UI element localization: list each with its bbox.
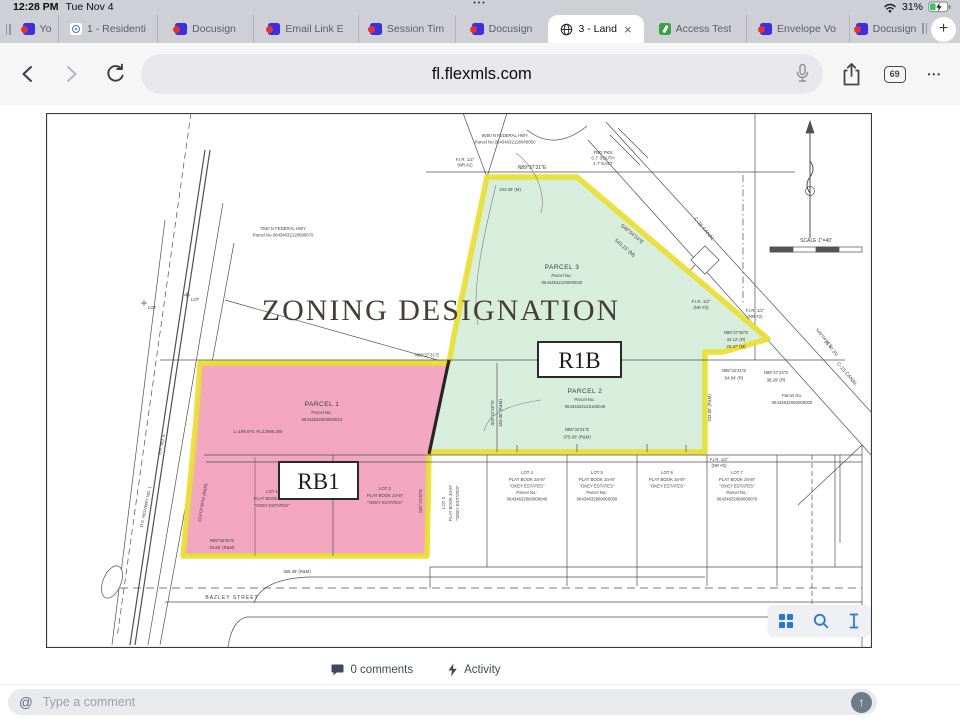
battery-charging-icon [928, 1, 952, 13]
svg-text:38.29' (R): 38.29' (R) [767, 378, 786, 383]
wifi-icon [883, 2, 897, 13]
svg-text:1.7' EAST: 1.7' EAST [593, 161, 613, 166]
svg-text:LOT: LOT [148, 305, 157, 310]
svg-text:Parcel No.:: Parcel No.: [551, 273, 572, 278]
svg-text:06434632080000050: 06434632080000050 [577, 497, 618, 502]
docusign-favicon [760, 23, 772, 35]
status-bar: 12:28 PM Tue Nov 4 ••• 31% [0, 0, 960, 15]
clock: 12:28 PM [13, 1, 59, 13]
svg-text:N89°37'31"E: N89°37'31"E [415, 353, 440, 358]
svg-text:06434632080000040: 06434632080000040 [507, 497, 548, 502]
svg-text:LOT 4: LOT 4 [521, 470, 533, 475]
tab-strip: Yo 1 - Residenti Docusign Email Link E S… [0, 15, 960, 43]
svg-text:N89°27'24"E: N89°27'24"E [764, 370, 789, 375]
activity-bolt-icon [447, 663, 458, 677]
comment-pill[interactable]: @ ↑ [8, 689, 877, 715]
svg-text:06434632060000000: 06434632060000000 [772, 400, 813, 405]
close-tab-icon[interactable]: × [624, 23, 632, 36]
grid-icon[interactable] [778, 613, 794, 629]
svg-text:0.7' SOUTH: 0.7' SOUTH [591, 156, 614, 161]
tab-4[interactable]: Session Tim [359, 15, 456, 43]
back-button[interactable] [17, 63, 39, 85]
mention-at-icon[interactable]: @ [19, 695, 33, 710]
tab-7[interactable]: Access Test [644, 15, 747, 43]
docusign-favicon [472, 23, 484, 35]
url-text: fl.flexmls.com [432, 65, 532, 84]
parcel1-label: PARCEL 1 [305, 401, 340, 408]
docusign-favicon [268, 23, 280, 35]
svg-text:L=198.670, R=22996.300: L=198.670, R=22996.300 [234, 429, 283, 434]
svg-text:RB1: RB1 [297, 469, 339, 494]
svg-text:PLAT BOOK 34-97: PLAT BOOK 34-97 [719, 477, 756, 482]
tab-overflow-right[interactable] [922, 23, 927, 34]
svg-text:Parcel No.:: Parcel No.: [586, 490, 607, 495]
browser-toolbar: fl.flexmls.com 69 ••• [0, 43, 960, 105]
svg-text:PLAT BOOK 34-97: PLAT BOOK 34-97 [509, 477, 546, 482]
tab-overflow-left[interactable] [0, 15, 16, 43]
svg-text:Parcel No.: Parcel No. [782, 393, 802, 398]
tab-0[interactable]: Yo [16, 15, 59, 43]
svg-text:"OKEY ESTATES": "OKEY ESTATES" [367, 500, 403, 505]
parcel3-label: PARCEL 3 [545, 264, 580, 271]
svg-text:N89°32'31"E: N89°32'31"E [722, 368, 747, 373]
svg-text:103.38' (M): 103.38' (M) [499, 187, 521, 192]
multitask-dots-icon: ••• [473, 0, 486, 7]
ipad-screen: 12:28 PM Tue Nov 4 ••• 31% Yo [0, 0, 960, 720]
zoning-designation-title: ZONING DESIGNATION [262, 294, 620, 327]
svg-text:(NR #2): (NR #2) [457, 163, 473, 168]
svg-text:7940 N FEDERAL HWY: 7940 N FEDERAL HWY [260, 226, 306, 231]
zone-label-rb1: RB1 [279, 462, 358, 499]
svg-text:S02°22'26"W: S02°22'26"W [490, 399, 495, 425]
battery-percent: 31% [902, 1, 923, 13]
send-comment-button[interactable]: ↑ [851, 692, 872, 713]
tab-active-land[interactable]: 3 - Land × [548, 15, 644, 43]
zone-label-r1b: R1B [538, 342, 621, 377]
comment-input[interactable] [41, 694, 851, 710]
new-tab-button[interactable]: + [931, 17, 956, 42]
target-favicon [70, 23, 82, 35]
svg-text:R1B: R1B [558, 348, 600, 373]
svg-text:FND PKN: FND PKN [594, 150, 613, 155]
tab-3[interactable]: Email Link E [254, 15, 359, 43]
svg-text:LOT 3: LOT 3 [441, 496, 446, 508]
tab-5[interactable]: Docusign [456, 15, 548, 43]
svg-text:N89°27'36"E: N89°27'36"E [724, 330, 749, 335]
svg-text:"OKEY ESTATES": "OKEY ESTATES" [649, 484, 685, 489]
mic-icon[interactable] [795, 63, 810, 85]
address-bar[interactable]: fl.flexmls.com [141, 54, 823, 94]
comment-bubble-icon [331, 663, 344, 676]
svg-text:"OKEY ESTATES": "OKEY ESTATES" [579, 484, 615, 489]
page-content: 8000 N FEDERAL HWY Parcel No.06434632120… [0, 105, 960, 655]
docusign-favicon [175, 23, 187, 35]
svg-text:F.I.R. 1/2": F.I.R. 1/2" [692, 299, 711, 304]
svg-text:369.38' (R&M): 369.38' (R&M) [283, 569, 311, 574]
svg-text:LOT 5: LOT 5 [591, 470, 603, 475]
search-icon[interactable] [813, 613, 829, 629]
svg-text:PLAT BOOK 34-97: PLAT BOOK 34-97 [579, 477, 616, 482]
comment-bar: @ ↑ [0, 684, 960, 720]
svg-text:(NR #2): (NR #2) [711, 463, 727, 468]
svg-text:LOT 7: LOT 7 [731, 470, 743, 475]
docusign-favicon [856, 23, 868, 35]
tab-2[interactable]: Docusign [158, 15, 254, 43]
activity-button[interactable]: Activity [447, 663, 500, 677]
date: Tue Nov 4 [66, 1, 114, 13]
svg-text:N09°56'26"E: N09°56'26"E [210, 538, 235, 543]
svg-text:103.00' (R&M): 103.00' (R&M) [498, 399, 503, 427]
svg-text:23.82' (R&M): 23.82' (R&M) [209, 545, 235, 550]
svg-text:34.12' (R): 34.12' (R) [727, 337, 746, 342]
more-menu-icon[interactable]: ••• [928, 70, 942, 79]
svg-text:54.84' (R): 54.84' (R) [725, 376, 744, 381]
svg-text:(NR #2): (NR #2) [693, 305, 709, 310]
svg-text:(NR #2): (NR #2) [747, 314, 763, 319]
scale-label: SCALE 1"=40' [800, 238, 832, 244]
svg-text:Parcel No.:: Parcel No.: [516, 490, 537, 495]
docusign-favicon [370, 23, 382, 35]
svg-text:Parcel No.06434632120090070: Parcel No.06434632120090070 [253, 233, 314, 238]
status-indicators: 31% [883, 1, 952, 13]
svg-text:LOT: LOT [191, 297, 200, 302]
svg-text:Parcel No.:: Parcel No.: [311, 410, 332, 415]
svg-text:LOT 1: LOT 1 [266, 489, 278, 494]
svg-text:N89°32'31"E: N89°32'31"E [565, 427, 590, 432]
tab-count-button[interactable]: 69 [884, 66, 906, 83]
parcel2-label: PARCEL 2 [568, 388, 603, 395]
comments-button[interactable]: 0 comments [331, 663, 413, 677]
tab-8[interactable]: Envelope Vo [747, 15, 850, 43]
svg-text:Parcel No.:: Parcel No.: [574, 397, 595, 402]
svg-text:N89°37'31"E: N89°37'31"E [518, 165, 547, 171]
text-cursor-icon[interactable] [848, 613, 860, 629]
svg-text:PLAT BOOK 34-97: PLAT BOOK 34-97 [649, 477, 686, 482]
svg-text:29.47' (M): 29.47' (M) [726, 344, 746, 349]
status-time-date: 12:28 PM Tue Nov 4 [13, 1, 114, 13]
svg-text:PLAT BOOK 34-97: PLAT BOOK 34-97 [448, 484, 453, 521]
svg-text:F.I.R. 1/2": F.I.R. 1/2" [710, 457, 729, 462]
svg-text:LOT 2: LOT 2 [379, 486, 391, 491]
svg-text:F.I.R. 1/2": F.I.R. 1/2" [456, 157, 475, 162]
svg-text:"OKEY ESTATES": "OKEY ESTATES" [509, 484, 545, 489]
svg-text:"OKEY ESTATES": "OKEY ESTATES" [719, 484, 755, 489]
svg-text:06434632060050010: 06434632060050010 [302, 417, 343, 422]
svg-text:"OKEY ESTATES": "OKEY ESTATES" [254, 503, 290, 508]
bazley-street-label: BAZLEY STREET [205, 595, 258, 601]
svg-text:PLAT BOOK 34-97: PLAT BOOK 34-97 [367, 493, 404, 498]
image-viewer-toolbar [768, 605, 870, 637]
forward-button[interactable] [60, 63, 82, 85]
docusign-favicon [23, 23, 35, 35]
zoning-survey-map: 8000 N FEDERAL HWY Parcel No.06434632120… [46, 113, 872, 648]
svg-text:103.00' (R&M): 103.00' (R&M) [707, 394, 712, 422]
access-test-favicon [659, 23, 671, 35]
svg-text:06434632125160040: 06434632125160040 [565, 404, 606, 409]
reload-button[interactable] [103, 62, 127, 86]
svg-text:"OKEY ESTATES": "OKEY ESTATES" [455, 485, 460, 521]
svg-text:Parcel No.06434632120040050: Parcel No.06434632120040050 [475, 140, 536, 145]
svg-text:F.I.R. 1/2": F.I.R. 1/2" [746, 308, 765, 313]
svg-text:S02°23'26"E: S02°23'26"E [418, 489, 423, 513]
tab-9[interactable]: Docusign [850, 15, 922, 43]
document-meta-bar: 0 comments Activity [0, 655, 960, 684]
svg-text:8000 N FEDERAL HWY: 8000 N FEDERAL HWY [482, 133, 528, 138]
share-icon[interactable] [841, 62, 862, 87]
zone-rb1-area [183, 363, 448, 556]
svg-text:06434632120000040: 06434632120000040 [542, 280, 583, 285]
svg-text:375.00' (R&M): 375.00' (R&M) [563, 435, 591, 440]
globe-icon [560, 23, 573, 36]
tab-1[interactable]: 1 - Residenti [59, 15, 158, 43]
svg-text:06434632080000070: 06434632080000070 [717, 497, 758, 502]
svg-text:LOT 6: LOT 6 [661, 470, 673, 475]
svg-text:Parcel No.:: Parcel No.: [726, 490, 747, 495]
